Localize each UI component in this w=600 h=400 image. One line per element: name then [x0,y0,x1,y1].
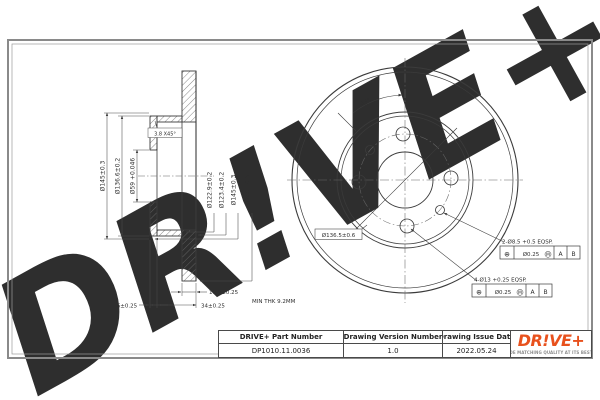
hat-wall-top [157,116,182,122]
hub-dia-label: Ø136.5±0.6 [322,232,356,239]
gdt2-datum-b: B [543,289,547,296]
leader-locating-holes [444,213,504,242]
gdt2-tolerance: Ø0.25 [495,289,512,296]
friction-ring-bottom [182,230,196,281]
issue-date-value: 2022.05.24 [443,344,511,357]
callout-locating-holes: 2-Ø8.5 +0.5 EQSP. [502,239,553,246]
drawing-sheet: DR!VE+ [0,0,600,400]
dim-centre-bore: Ø59 +0.046 [130,158,137,195]
gdt1-material-modifier: M [546,252,550,258]
part-number-header: DRIVE+ Part Number [219,331,344,344]
logo-tagline: OE MATCHING QUALITY AT ITS BEST [511,350,591,355]
dim-total-width: 34±0.25 [201,304,225,310]
title-block: DRIVE+ Part Number Drawing Version Numbe… [218,330,592,358]
gdt1-datum-b: B [571,251,575,258]
chamfer-label: 3.8 X45° [154,132,176,138]
dim-outer-diameter: Ø240±0.3 [245,174,252,205]
brand-logo: DR!VE+ OE MATCHING QUALITY AT ITS BEST [511,331,591,357]
dim-friction-id-2: Ø123.4±0.2 [219,172,226,209]
callout-bolt-holes: 4-Ø13 +0.25 EQSP. [474,277,527,284]
gdt1-tolerance: Ø0.25 [523,251,540,258]
gdt2-material-modifier: M [518,290,522,296]
hat-wall-bottom [157,230,182,236]
version-value: 1.0 [344,344,443,357]
mount-flange-bottom [150,202,157,236]
leader-bolt-holes [411,229,477,281]
friction-ring-top [182,71,196,122]
part-number-value: DP1010.11.0036 [219,344,344,357]
gdt-frame-bolt-holes [472,284,552,297]
dim-hat-od: Ø136.6±0.2 [115,158,122,195]
dim-flange-od: Ø145±0.3 [100,160,107,191]
dim-disc-thickness: 10.9±0.25 [209,290,239,296]
dim-flange-width: 6±0.25 [117,304,138,310]
gdt-frame-locating-holes [500,246,580,259]
gdt1-position-symbol: ⊕ [504,251,510,259]
issue-date-header: Drawing Issue Date [443,331,511,344]
gdt2-position-symbol: ⊕ [476,289,482,297]
drive-plus-logo: DR!VE+ [518,333,585,349]
min-thickness-note: MIN THK 9.2MM [252,299,296,305]
dim-flange-od-right: Ø145±0.3 [231,174,238,205]
version-header: Drawing Version Number [344,331,443,344]
dim-friction-id-1: Ø122.9±0.2 [207,172,214,209]
